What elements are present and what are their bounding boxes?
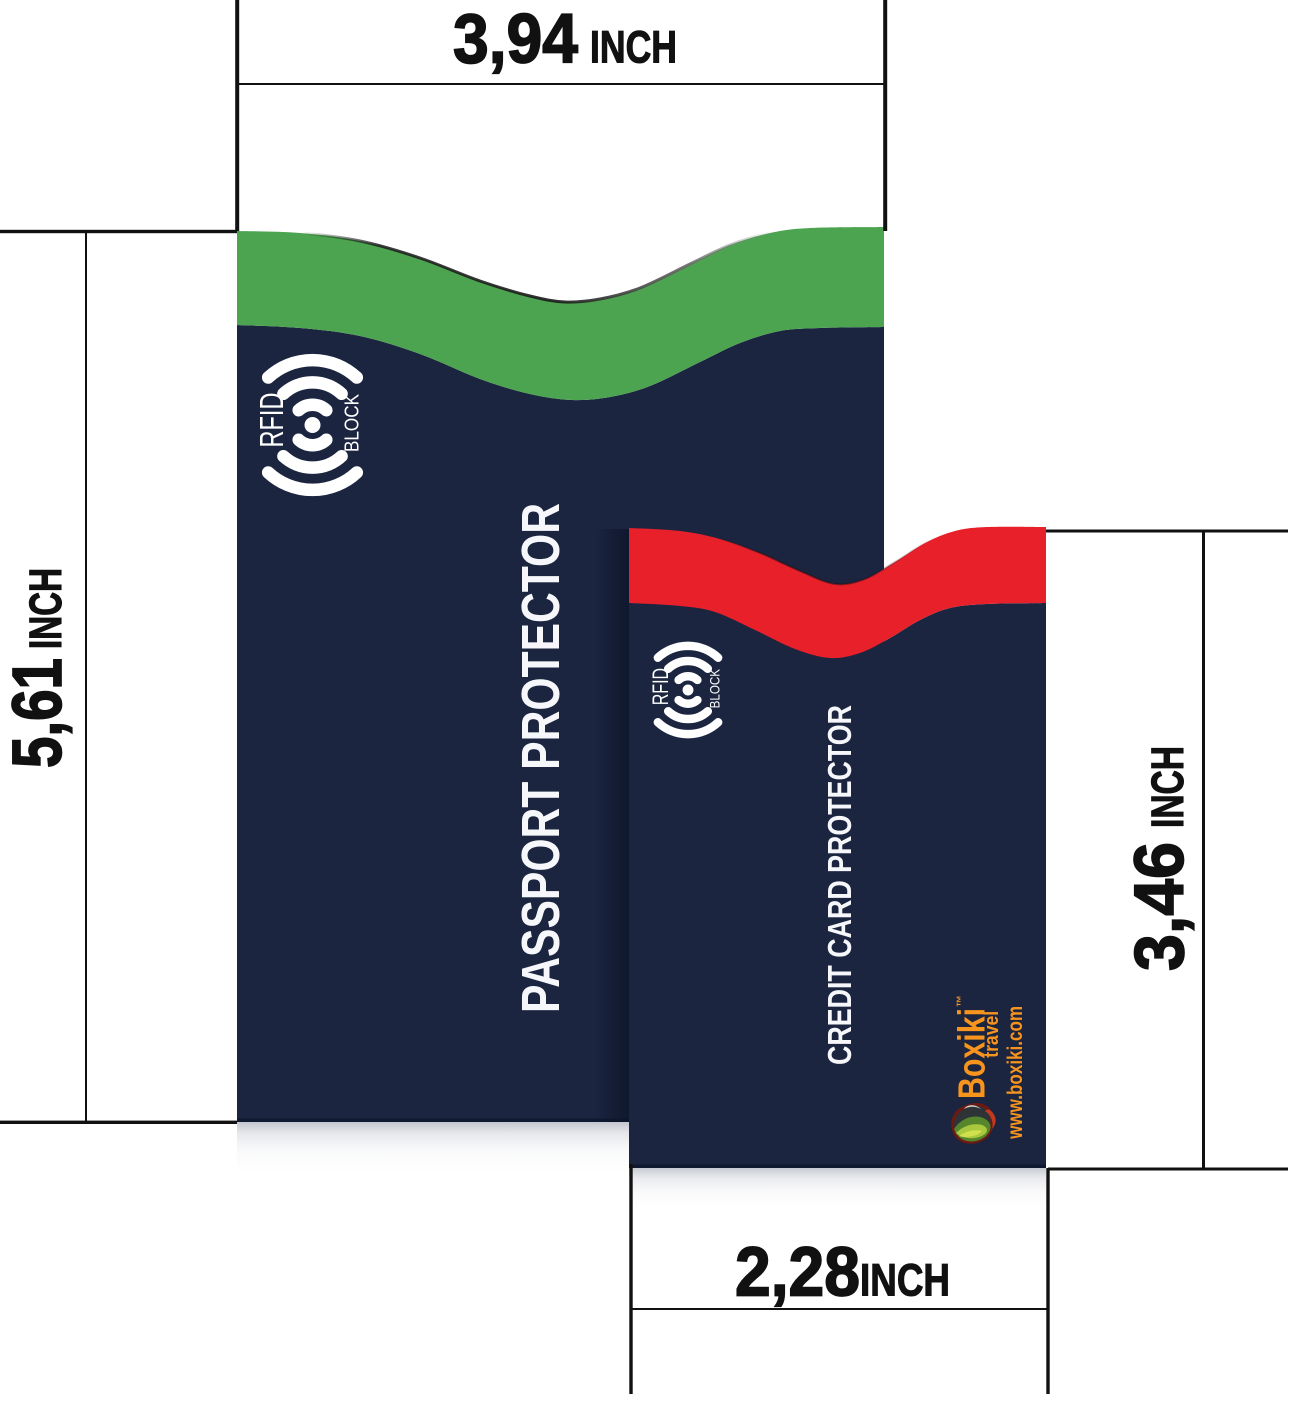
- svg-text:travel: travel: [981, 1011, 1003, 1058]
- svg-text:™: ™: [954, 995, 968, 1007]
- svg-text:CREDIT CARD PROTECTOR: CREDIT CARD PROTECTOR: [821, 705, 858, 1065]
- svg-text:PASSPORT PROTECTOR: PASSPORT PROTECTOR: [511, 503, 571, 1013]
- svg-text:www.boxiki.com: www.boxiki.com: [1004, 1006, 1027, 1140]
